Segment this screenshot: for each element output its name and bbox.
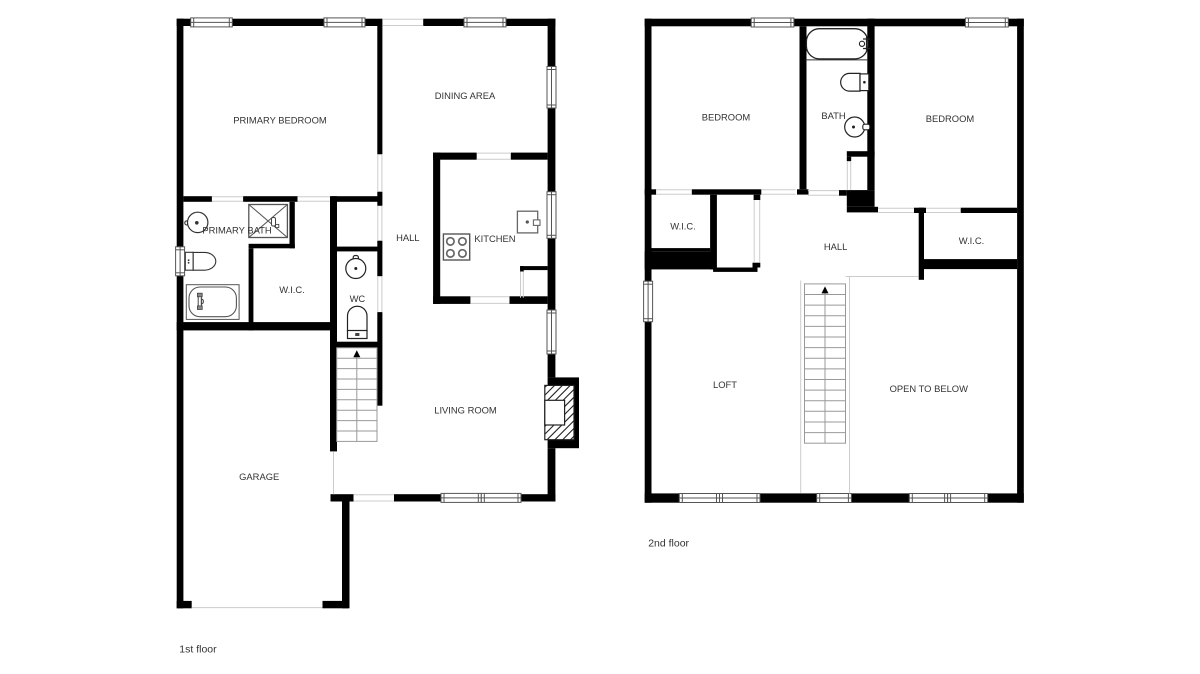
svg-text:PRIMARY BEDROOM: PRIMARY BEDROOM	[233, 114, 327, 125]
svg-text:2nd floor: 2nd floor	[648, 537, 689, 549]
svg-text:BEDROOM: BEDROOM	[702, 111, 751, 122]
svg-text:BEDROOM: BEDROOM	[926, 113, 975, 124]
svg-text:KITCHEN: KITCHEN	[474, 233, 515, 244]
svg-text:WC: WC	[350, 293, 366, 304]
svg-text:1st floor: 1st floor	[179, 643, 217, 655]
svg-text:DINING AREA: DINING AREA	[435, 90, 496, 101]
svg-text:W.I.C.: W.I.C.	[670, 220, 696, 231]
svg-text:W.I.C.: W.I.C.	[279, 284, 305, 295]
svg-text:W.I.C.: W.I.C.	[959, 235, 985, 246]
svg-text:HALL: HALL	[396, 232, 419, 243]
svg-text:OPEN TO BELOW: OPEN TO BELOW	[890, 383, 968, 394]
svg-text:HALL: HALL	[824, 241, 847, 252]
svg-text:GARAGE: GARAGE	[239, 471, 279, 482]
svg-text:LIVING ROOM: LIVING ROOM	[434, 405, 497, 416]
svg-text:BATH: BATH	[821, 110, 845, 121]
svg-text:LOFT: LOFT	[713, 379, 737, 390]
svg-text:PRIMARY BATH: PRIMARY BATH	[202, 224, 271, 235]
